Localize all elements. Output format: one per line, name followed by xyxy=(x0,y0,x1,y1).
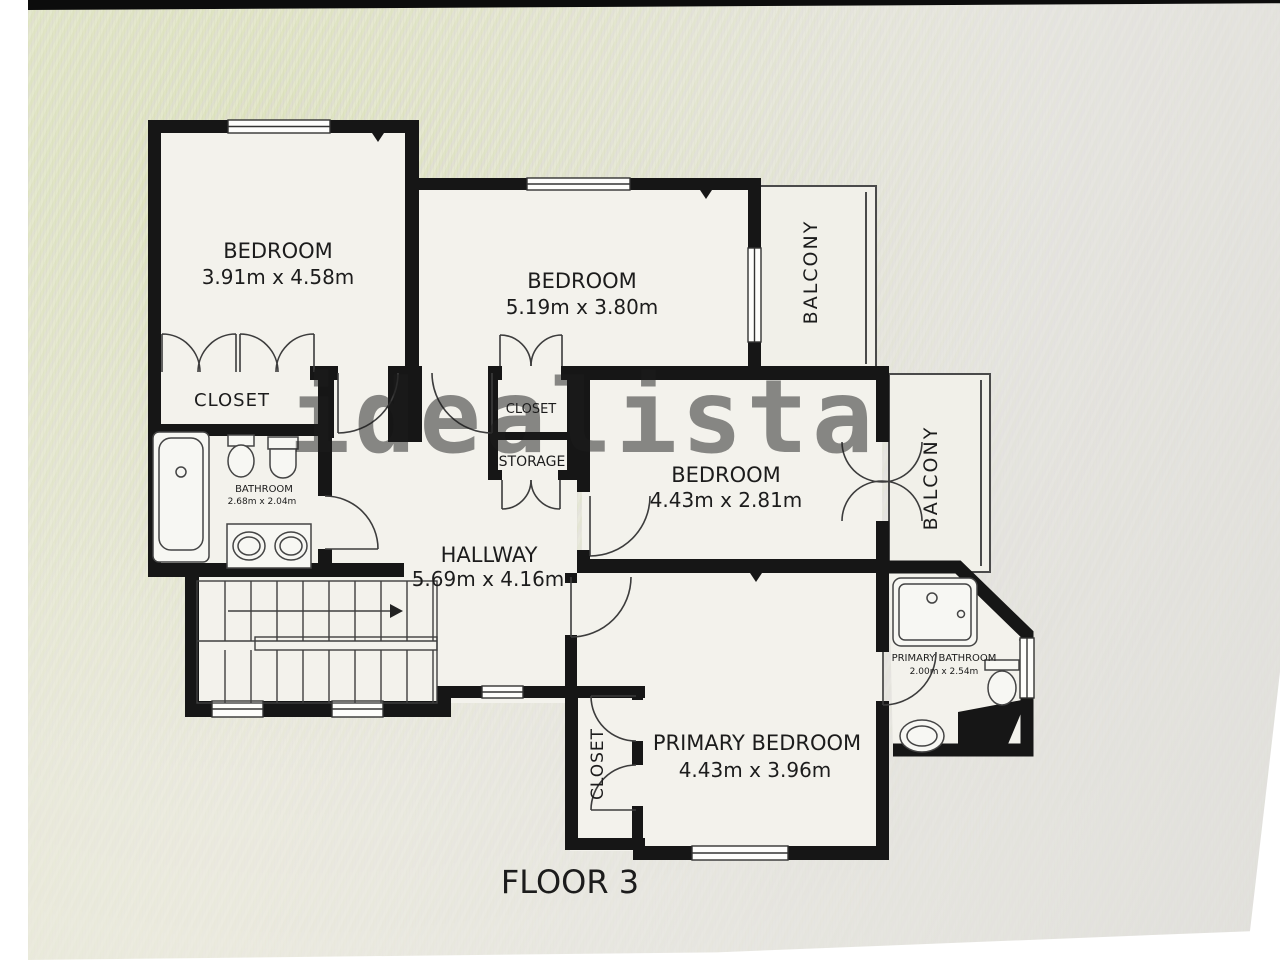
window-bedroom2-top xyxy=(527,178,630,190)
label-hallway-name: HALLWAY xyxy=(441,543,538,567)
label-closet-bedroom1: CLOSET xyxy=(194,390,270,411)
label-balcony-right: BALCONY xyxy=(920,426,942,531)
label-bathroom-dims: 2.68m x 2.04m xyxy=(228,497,297,507)
toilet2-bowl xyxy=(988,671,1016,705)
window-balcony-top xyxy=(748,248,761,342)
window-bedroom1-top xyxy=(228,120,330,133)
label-bedroom1-dims: 3.91m x 4.58m xyxy=(202,265,355,289)
toilet-bowl xyxy=(228,445,254,477)
window-primary-bathroom xyxy=(1020,638,1034,698)
label-hallway-dims: 5.69m x 4.16m xyxy=(412,567,565,591)
label-storage: STORAGE xyxy=(499,454,566,470)
label-bedroom3-name: BEDROOM xyxy=(671,463,781,487)
label-bathroom-name: BATHROOM xyxy=(235,484,293,495)
label-bedroom2-dims: 5.19m x 3.80m xyxy=(506,295,659,319)
label-bedroom1-name: BEDROOM xyxy=(223,239,333,263)
label-closet-primary: CLOSET xyxy=(588,728,608,800)
label-primary-bathroom-dims: 2.00m x 2.54m xyxy=(910,667,979,677)
label-bedroom3-dims: 4.43m x 2.81m xyxy=(650,488,803,512)
label-bedroom2-name: BEDROOM xyxy=(527,269,637,293)
idealista-watermark: idealista xyxy=(289,358,878,477)
label-primary-bedroom-name: PRIMARY BEDROOM xyxy=(653,731,861,755)
bathtub-drain xyxy=(176,467,186,477)
label-balcony-top: BALCONY xyxy=(800,220,822,325)
label-primary-bathroom-name: PRIMARY BATHROOM xyxy=(892,653,997,664)
label-closet-center: CLOSET xyxy=(506,402,557,417)
window-corridor xyxy=(482,686,523,698)
floor-title: FLOOR 3 xyxy=(501,863,639,901)
floorplan-svg: idealista BEDROOM 3.91m x 4.58m BEDROOM … xyxy=(0,0,1280,960)
window-primary-bedroom xyxy=(692,846,788,860)
photo-of-screen: idealista BEDROOM 3.91m x 4.58m BEDROOM … xyxy=(0,0,1280,960)
shower-drain xyxy=(927,593,937,603)
label-primary-bedroom-dims: 4.43m x 3.96m xyxy=(679,758,832,782)
